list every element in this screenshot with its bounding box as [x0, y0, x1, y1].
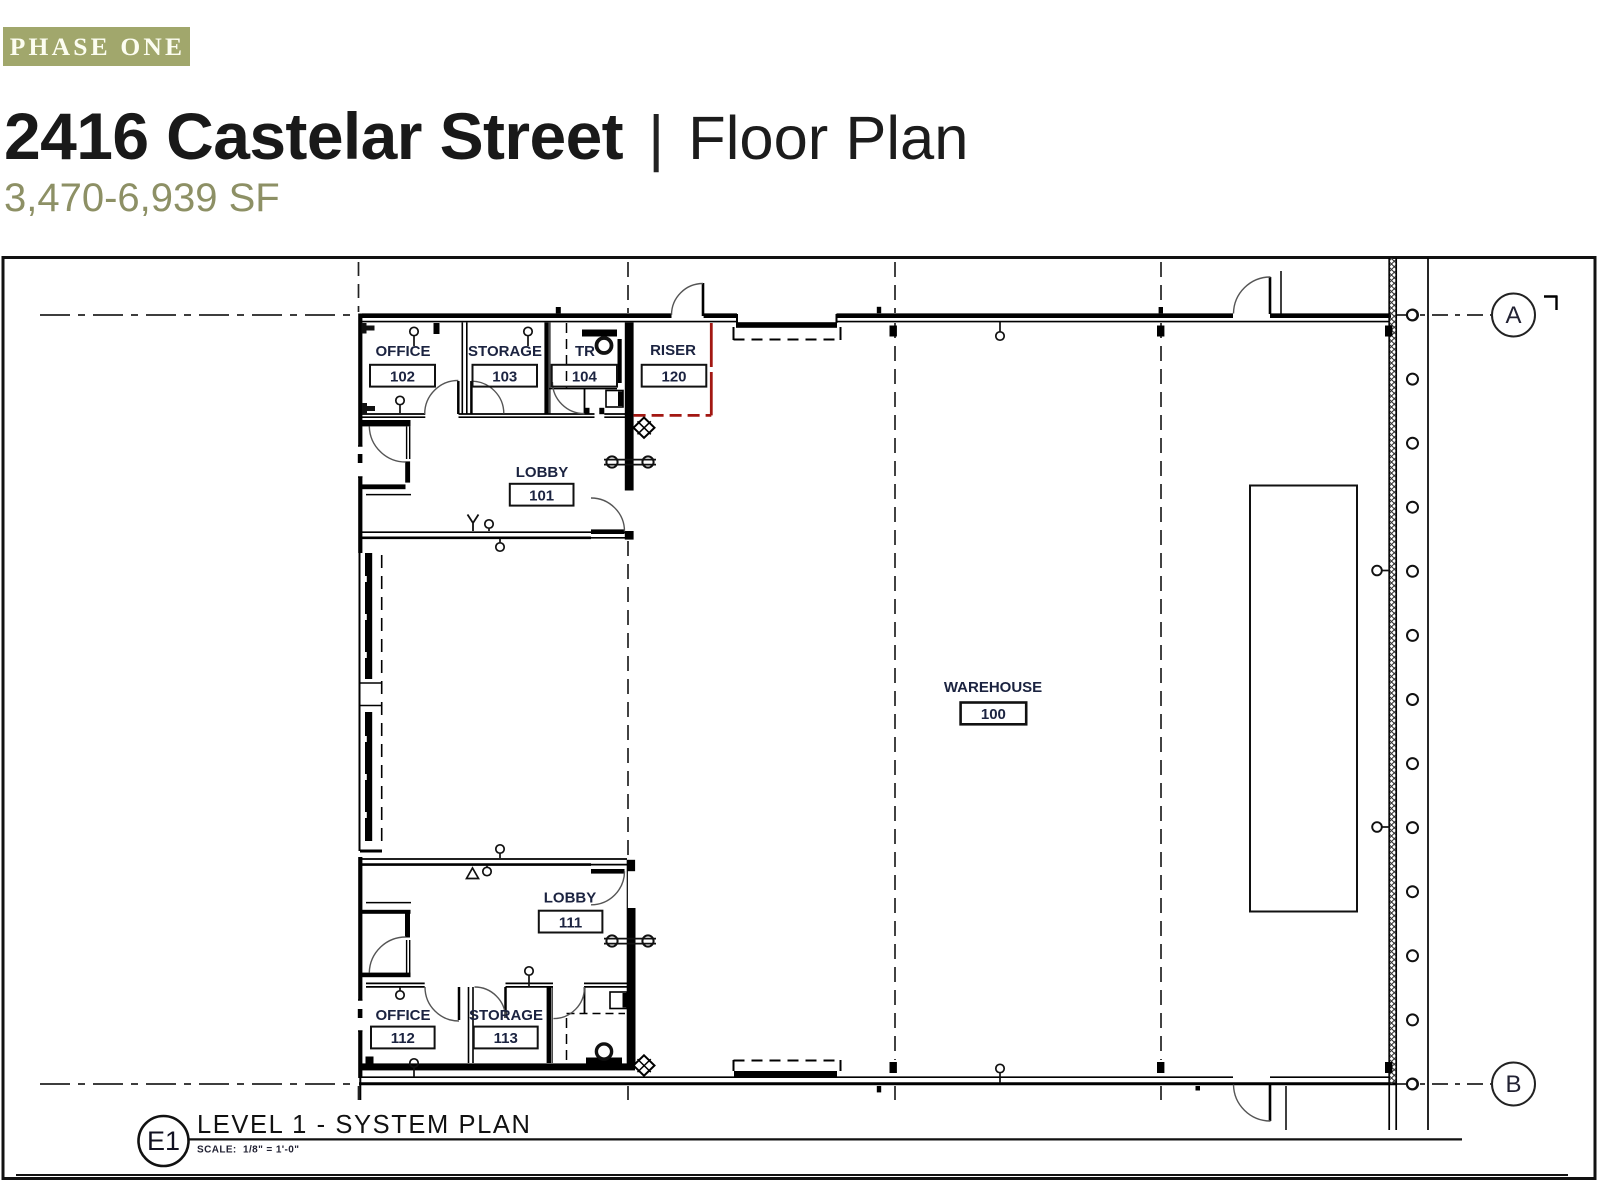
svg-text:OFFICE: OFFICE	[376, 343, 431, 360]
svg-text:112: 112	[391, 1030, 415, 1047]
svg-text:103: 103	[492, 368, 517, 385]
svg-text:OFFICE: OFFICE	[376, 1007, 431, 1024]
svg-text:TR: TR	[575, 343, 595, 360]
svg-text:SCALE: 1/8" = 1'-0": SCALE: 1/8" = 1'-0"	[197, 1145, 299, 1156]
svg-text:WAREHOUSE: WAREHOUSE	[944, 679, 1042, 696]
svg-text:A: A	[1505, 302, 1521, 329]
svg-text:LOBBY: LOBBY	[544, 890, 597, 907]
svg-text:113: 113	[494, 1030, 518, 1047]
svg-text:100: 100	[981, 706, 1006, 723]
svg-text:102: 102	[390, 368, 415, 385]
svg-text:120: 120	[661, 368, 686, 385]
svg-text:111: 111	[559, 914, 582, 931]
svg-text:B: B	[1505, 1071, 1521, 1098]
svg-text:101: 101	[529, 487, 554, 504]
svg-text:RISER: RISER	[650, 342, 696, 359]
svg-text:STORAGE: STORAGE	[469, 1007, 543, 1024]
svg-text:104: 104	[572, 368, 598, 385]
svg-text:LOBBY: LOBBY	[516, 464, 569, 481]
svg-text:STORAGE: STORAGE	[468, 343, 542, 360]
svg-text:E1: E1	[147, 1126, 180, 1156]
svg-text:LEVEL 1 - SYSTEM PLAN: LEVEL 1 - SYSTEM PLAN	[197, 1111, 532, 1139]
